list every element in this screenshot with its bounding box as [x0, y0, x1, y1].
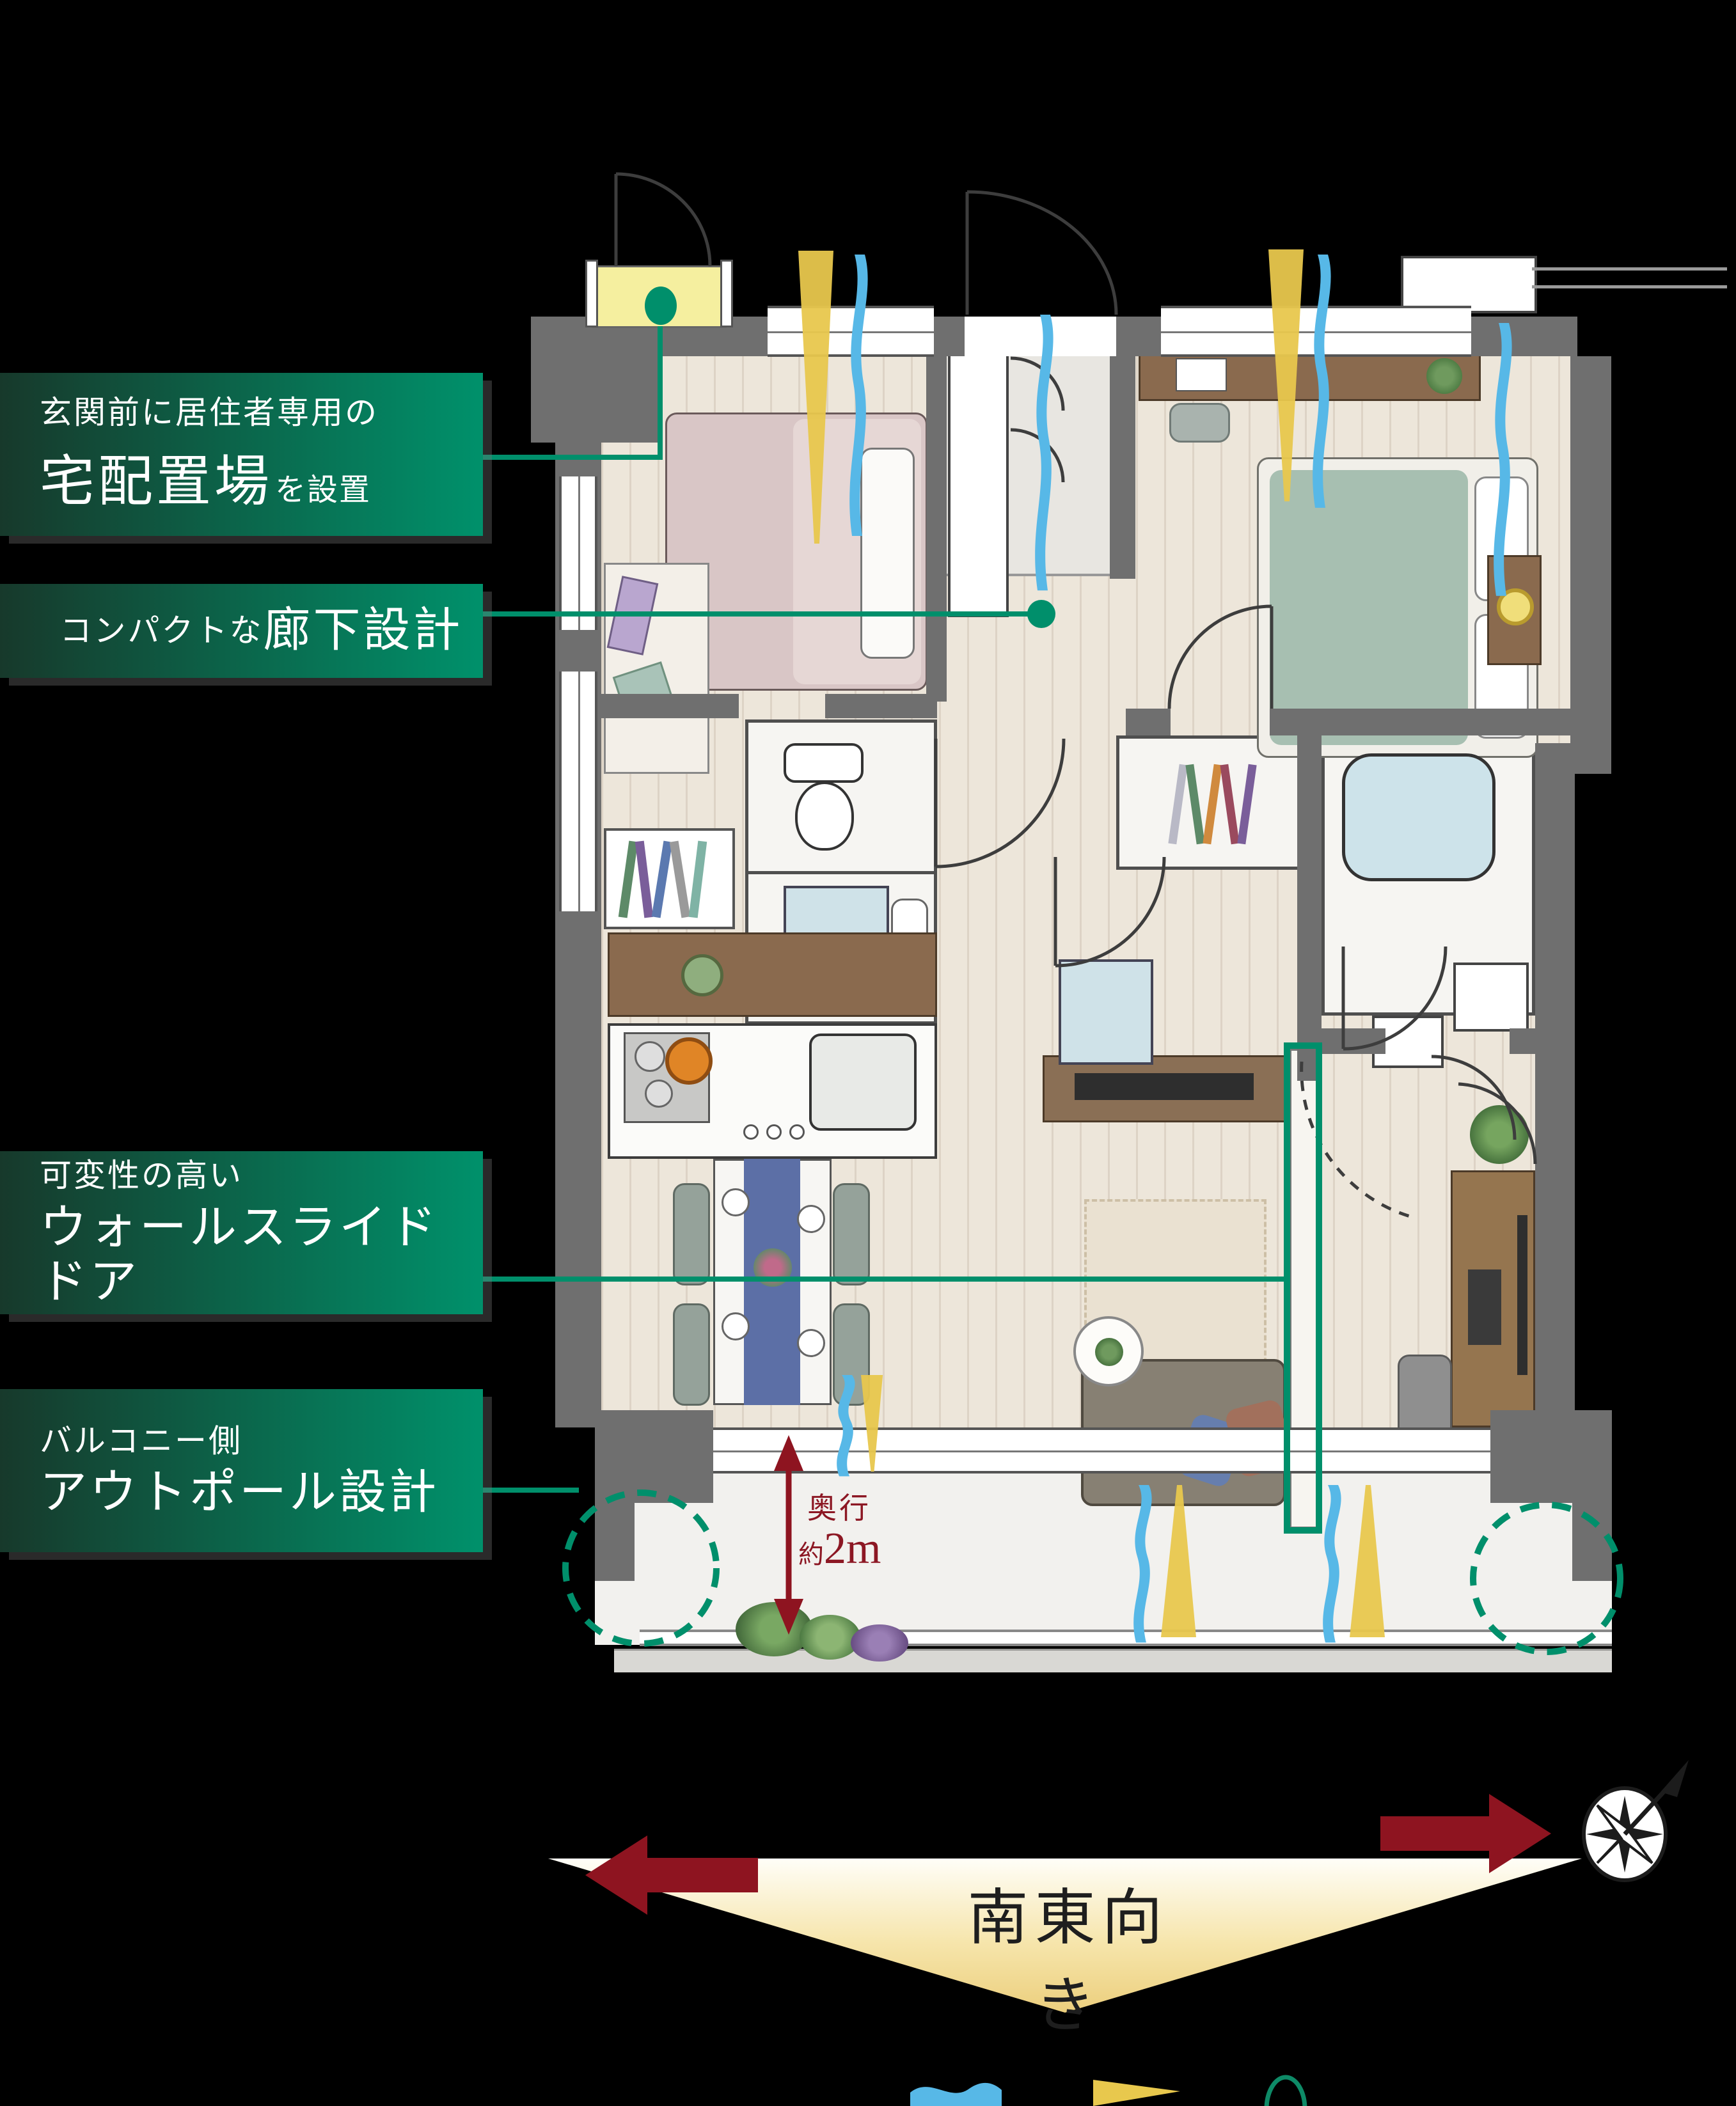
label-wallslide-line1: 可変性の高い: [40, 1156, 483, 1196]
bathtub: [1342, 753, 1495, 881]
dining-chair-3: [833, 1183, 870, 1285]
label-outpole-line1: バルコニー側: [40, 1421, 483, 1461]
bedroom2-chair: [1169, 403, 1230, 443]
outpole-column-right: [1490, 1410, 1612, 1503]
left-window-lower: [559, 672, 597, 911]
porch-jamb-left: [585, 260, 598, 327]
label-delivery-suffix: を設置: [275, 473, 371, 507]
bedroom2-plant: [1426, 358, 1462, 394]
wall-bedroom1-south: [601, 694, 739, 718]
wall-deskroom-north-a: [1322, 1028, 1385, 1054]
wall-top-c: [1110, 317, 1164, 356]
place-setting-2: [797, 1205, 825, 1233]
storage-niche: [1453, 963, 1529, 1032]
kitchen-pot: [681, 954, 723, 996]
wall-right-upper: [1570, 356, 1611, 743]
place-setting-1: [722, 1188, 750, 1216]
legend-light-icon: [1093, 2080, 1180, 2106]
place-setting-3: [722, 1312, 750, 1340]
wall-deskroom-north-b: [1510, 1028, 1535, 1054]
depth-number: 2m: [824, 1524, 881, 1573]
wall-topleft-block: [531, 317, 659, 443]
right-arrow: [1380, 1794, 1551, 1873]
depth-approx: 約: [798, 1540, 824, 1569]
depth-label: 奥行: [807, 1485, 871, 1527]
porch-door-arc: [616, 174, 710, 266]
bedroom1-window: [768, 306, 934, 357]
nightstand-lamp: [1497, 588, 1534, 625]
wall-top-d: [1469, 317, 1577, 356]
dining-chair-4: [833, 1303, 870, 1406]
balcony-flowers-purple: [851, 1624, 908, 1662]
knob-2: [766, 1124, 782, 1140]
direction-label: 南東向き: [940, 1869, 1196, 2044]
label-delivery-line1: 玄関前に居住者専用の: [40, 393, 483, 433]
burner-1: [635, 1041, 665, 1072]
label-out-pole: バルコニー側 アウトポール設計: [0, 1389, 483, 1552]
label-corridor-emphasis: 廊下設計: [264, 604, 463, 658]
label-delivery-spot: 玄関前に居住者専用の 宅配置場 を設置: [0, 373, 483, 536]
place-setting-4: [797, 1329, 825, 1357]
wall-bath-west: [1297, 735, 1322, 1081]
delivery-spot-highlight: [592, 265, 727, 328]
pipe-space-box: [1401, 256, 1537, 313]
meter-line-2: [1532, 285, 1727, 288]
burner-2: [645, 1080, 673, 1108]
wall-entrance-west: [926, 356, 947, 702]
outpole-column-right-leg: [1572, 1503, 1612, 1581]
kitchen-back-counter: [608, 932, 937, 1017]
deskroom-plant: [1470, 1105, 1529, 1164]
legend-wind-icon: [910, 2083, 1002, 2106]
left-window-upper: [559, 476, 597, 630]
label-wallslide-emphasis: ウォールスライドドア: [40, 1201, 483, 1310]
toilet-tank: [784, 743, 864, 783]
desk-papers: [1176, 358, 1227, 391]
porch-jamb-right: [720, 260, 733, 327]
kitchen-sink: [809, 1033, 917, 1131]
left-arrow: [585, 1835, 758, 1915]
label-compact-corridor: コンパクトな 廊下設計: [0, 584, 483, 678]
entrance-door-opening: [965, 317, 1116, 356]
entrance-door-arc: [967, 192, 1116, 315]
bedroom2-window: [1161, 306, 1471, 357]
wall-bedroom1-south-b: [825, 694, 937, 718]
side-table-plant: [1095, 1338, 1123, 1366]
pc-monitor: [1517, 1215, 1527, 1375]
wall-right-lower: [1535, 743, 1575, 1427]
outpole-column-left-leg: [595, 1503, 635, 1581]
pc-keyboard: [1468, 1269, 1501, 1345]
wall-bedroom2-south-b: [1270, 709, 1586, 735]
label-delivery-emphasis: 宅配置場: [40, 451, 272, 512]
label-corridor-prefix: コンパクトな: [60, 611, 264, 651]
wall-bedroom2-south-a: [1126, 709, 1171, 735]
dining-chair-2: [673, 1303, 710, 1406]
bed-bedroom2: [1270, 470, 1468, 745]
depth-value: 約2m: [798, 1523, 881, 1575]
dining-chair-1: [673, 1183, 710, 1285]
knob-1: [743, 1124, 759, 1140]
knob-3: [789, 1124, 805, 1140]
toilet-bowl: [795, 782, 854, 851]
legend-icons: [910, 2077, 1305, 2106]
bed-bedroom1-pillow: [860, 448, 915, 659]
washing-machine: [1059, 959, 1153, 1065]
balcony-sliding-windows: [713, 1427, 1490, 1473]
floor-plan-page: 玄関前に居住者専用の 宅配置場 を設置 コンパクトな 廊下設計 可変性の高い ウ…: [0, 0, 1736, 2106]
outpole-column-left: [595, 1410, 713, 1503]
legend-circle-icon: [1266, 2077, 1305, 2106]
compass-rose-icon: [1584, 1760, 1689, 1880]
meter-line-1: [1532, 267, 1727, 271]
label-wall-slide-door: 可変性の高い ウォールスライドドア: [0, 1151, 483, 1314]
orange-pot: [665, 1037, 713, 1085]
table-flowers: [754, 1248, 792, 1287]
shoe-cabinet: [948, 349, 1009, 617]
wall-entrance-east: [1110, 356, 1135, 579]
label-outpole-emphasis: アウトポール設計: [40, 1466, 483, 1520]
tv: [1075, 1073, 1254, 1100]
